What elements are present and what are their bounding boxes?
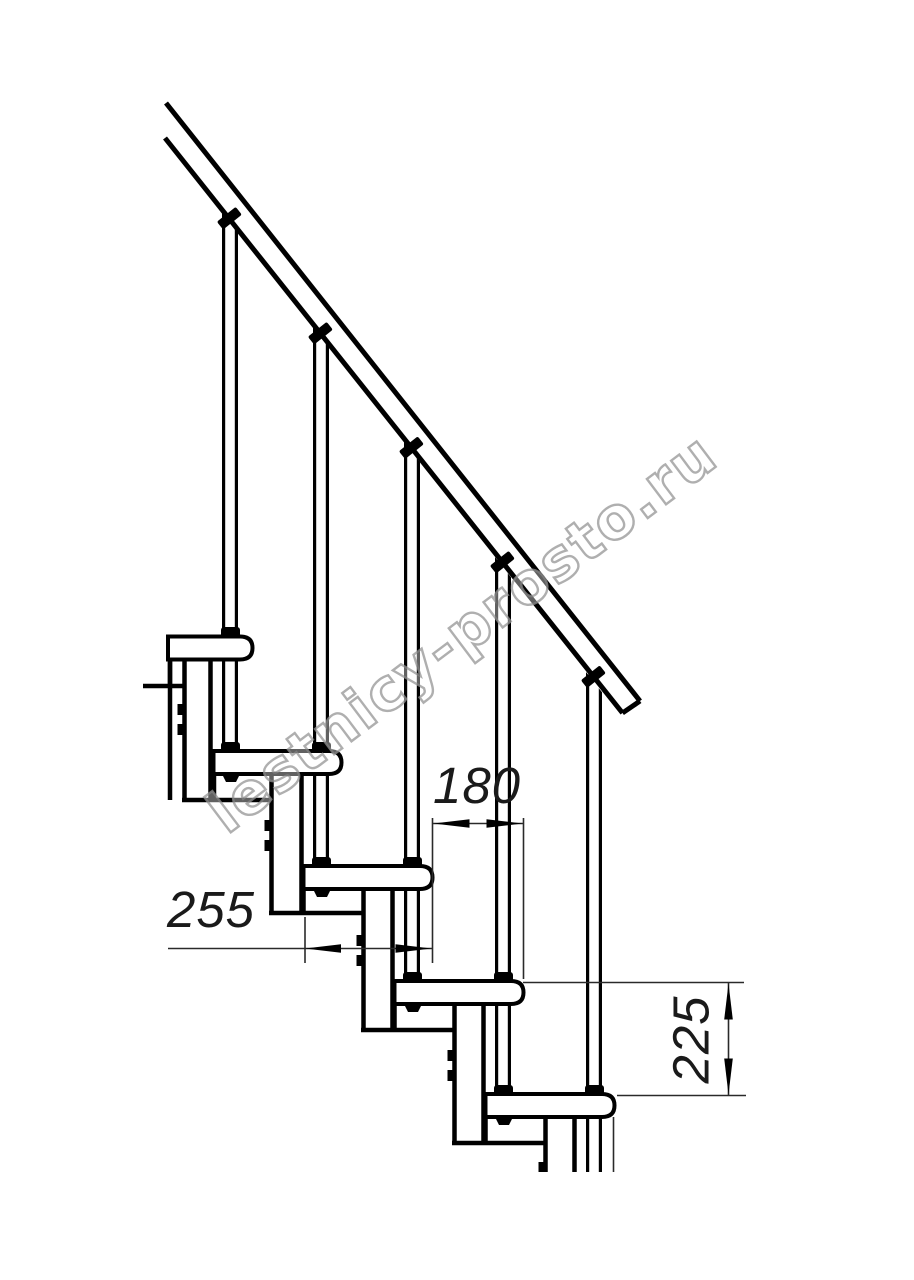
collar xyxy=(403,972,422,983)
collar xyxy=(403,857,422,868)
dimension-label-tread-depth: 255 xyxy=(163,884,259,935)
bolt xyxy=(178,704,185,715)
dimension-label-step-rise: 225 xyxy=(666,990,717,1090)
bolt xyxy=(178,724,185,735)
arrow-up xyxy=(724,984,733,1020)
arrow-left xyxy=(305,944,341,953)
module-3 xyxy=(304,889,455,1030)
baluster-2 xyxy=(313,327,329,868)
collar xyxy=(221,742,240,753)
nut xyxy=(495,1117,513,1125)
nut xyxy=(404,1004,422,1012)
collar xyxy=(221,627,240,638)
dimension-label-step-run: 180 xyxy=(427,760,527,811)
nut xyxy=(313,889,331,897)
module-4 xyxy=(395,1004,546,1143)
baluster-1 xyxy=(222,212,238,752)
drawing-canvas: 255 180 225 lestnicy-prosto.ru xyxy=(0,0,914,1280)
bolt xyxy=(448,1070,455,1081)
collar xyxy=(494,1085,513,1096)
collar xyxy=(585,1085,604,1096)
arrow-left xyxy=(434,819,470,828)
collar xyxy=(312,857,331,868)
collar xyxy=(494,972,513,983)
bolt xyxy=(448,1050,455,1061)
tread-5 xyxy=(486,1094,615,1117)
tread-4 xyxy=(395,981,524,1004)
bolt xyxy=(357,935,364,946)
arrow-down xyxy=(724,1059,733,1095)
tread-3 xyxy=(304,866,433,889)
bolt xyxy=(539,1162,546,1172)
bolt xyxy=(265,840,272,851)
tread-1 xyxy=(168,637,253,660)
bolt xyxy=(357,955,364,966)
